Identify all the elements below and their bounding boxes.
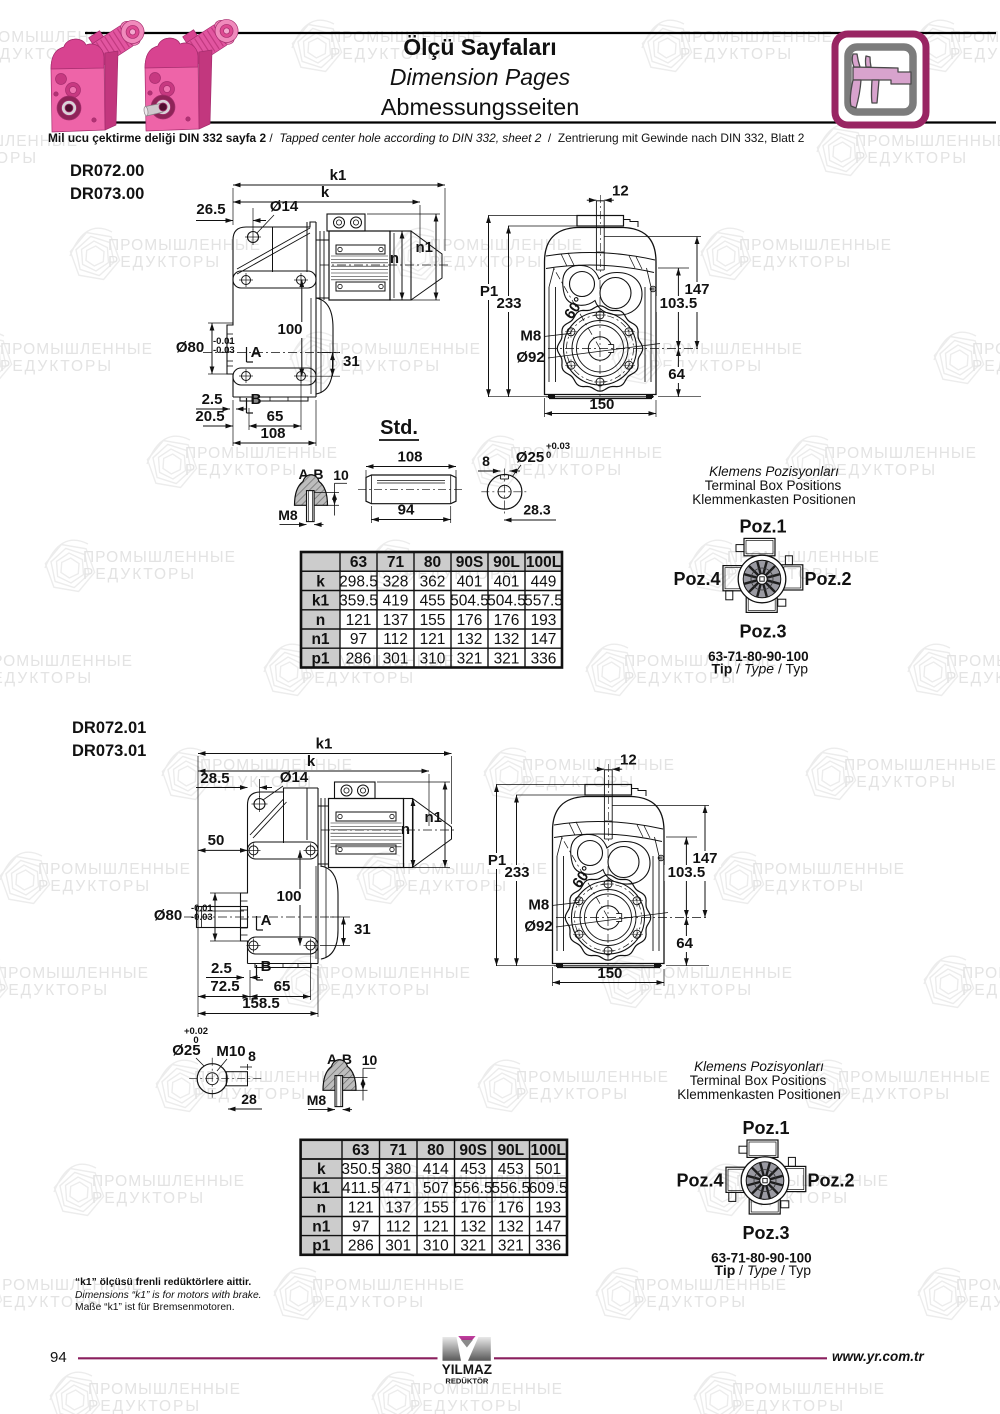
svg-text:380: 380 [385, 1161, 411, 1178]
svg-text:M8: M8 [520, 328, 541, 345]
svg-text:Klemmenkasten Positionen: Klemmenkasten Positionen [692, 492, 856, 507]
svg-text:176: 176 [460, 1199, 486, 1216]
svg-text:158.5: 158.5 [242, 995, 280, 1012]
svg-text:414: 414 [423, 1161, 449, 1178]
svg-text:455: 455 [420, 593, 446, 610]
svg-text:n: n [401, 821, 410, 838]
svg-text:A: A [251, 344, 262, 361]
svg-text:80: 80 [424, 554, 441, 571]
svg-text:471: 471 [385, 1180, 411, 1197]
svg-text:103.5: 103.5 [668, 864, 706, 881]
svg-text:121: 121 [348, 1199, 374, 1216]
svg-text:321: 321 [457, 650, 483, 667]
svg-text:504.5: 504.5 [487, 593, 526, 610]
svg-text:-0.03: -0.03 [213, 345, 235, 356]
svg-text:26.5: 26.5 [196, 201, 225, 218]
svg-text:0: 0 [546, 450, 551, 461]
svg-text:147: 147 [535, 1219, 561, 1236]
svg-text:Std.: Std. [380, 417, 418, 439]
svg-text:n: n [390, 250, 399, 267]
svg-text:64: 64 [668, 366, 685, 383]
svg-text:112: 112 [383, 631, 408, 648]
svg-text:65: 65 [267, 408, 284, 425]
svg-text:401: 401 [457, 573, 483, 590]
svg-text:71: 71 [390, 1142, 408, 1159]
svg-text:Tip / Type / Typ: Tip / Type / Typ [712, 661, 809, 677]
svg-text:411.5: 411.5 [342, 1180, 380, 1197]
svg-text:Poz.4: Poz.4 [673, 569, 720, 589]
svg-text:B: B [251, 391, 262, 408]
svg-text:609.5: 609.5 [529, 1180, 568, 1197]
svg-text:155: 155 [423, 1199, 449, 1216]
svg-text:310: 310 [423, 1238, 449, 1255]
svg-text:Ø92: Ø92 [516, 349, 544, 366]
svg-text:65: 65 [274, 978, 291, 995]
svg-text:Poz.2: Poz.2 [807, 1170, 854, 1190]
svg-text:501: 501 [535, 1161, 561, 1178]
svg-text:12: 12 [620, 752, 637, 769]
svg-text:336: 336 [531, 650, 557, 667]
svg-text:28: 28 [241, 1091, 257, 1107]
svg-text:132: 132 [498, 1219, 524, 1236]
svg-text:M10: M10 [216, 1043, 245, 1060]
svg-text:121: 121 [420, 631, 446, 648]
svg-text:Poz.3: Poz.3 [739, 622, 786, 642]
svg-text:321: 321 [460, 1238, 486, 1255]
svg-text:Terminal Box Positions: Terminal Box Positions [690, 1073, 827, 1088]
svg-text:80: 80 [427, 1142, 444, 1159]
svg-text:147: 147 [531, 631, 557, 648]
svg-text:193: 193 [531, 612, 557, 629]
svg-text:A: A [261, 912, 272, 929]
svg-text:298.5: 298.5 [339, 573, 378, 590]
svg-text:Ø14: Ø14 [280, 769, 309, 786]
svg-text:k: k [307, 753, 316, 770]
svg-text:507: 507 [423, 1180, 449, 1197]
svg-text:10: 10 [362, 1052, 378, 1068]
svg-text:103.5: 103.5 [660, 295, 698, 312]
svg-text:p1: p1 [311, 650, 329, 667]
svg-text:350.5: 350.5 [341, 1161, 380, 1178]
svg-text:YILMAZ: YILMAZ [442, 1362, 492, 1377]
svg-text:k1: k1 [312, 593, 330, 610]
svg-text:-0.03: -0.03 [191, 912, 213, 923]
svg-text:301: 301 [383, 650, 409, 667]
svg-text:286: 286 [348, 1238, 374, 1255]
svg-text:63: 63 [352, 1142, 370, 1159]
svg-text:k: k [316, 573, 325, 590]
svg-text:k: k [321, 184, 330, 201]
svg-text:100: 100 [277, 321, 302, 338]
svg-text:97: 97 [350, 631, 367, 648]
svg-text:Ø25: Ø25 [516, 449, 544, 466]
svg-text:90L: 90L [497, 1142, 524, 1159]
svg-text:556.5: 556.5 [454, 1180, 493, 1197]
svg-text:n: n [316, 612, 325, 629]
svg-text:M8: M8 [278, 507, 298, 523]
svg-text:286: 286 [346, 650, 372, 667]
svg-text:M8: M8 [307, 1092, 327, 1108]
svg-text:137: 137 [385, 1199, 411, 1216]
svg-text:k: k [317, 1161, 326, 1178]
svg-text:n1: n1 [312, 1219, 330, 1236]
svg-text:362: 362 [420, 573, 446, 590]
svg-text:132: 132 [457, 631, 483, 648]
svg-text:n1: n1 [424, 809, 442, 826]
svg-text:328: 328 [383, 573, 409, 590]
svg-text:28.5: 28.5 [200, 770, 229, 787]
svg-text:Klemmenkasten Positionen: Klemmenkasten Positionen [677, 1087, 841, 1102]
svg-text:28.3: 28.3 [523, 502, 550, 518]
svg-text:8: 8 [248, 1048, 256, 1064]
svg-text:556.5: 556.5 [491, 1180, 530, 1197]
svg-text:90S: 90S [456, 554, 484, 571]
svg-text:20.5: 20.5 [195, 408, 224, 425]
svg-text:132: 132 [460, 1219, 486, 1236]
svg-text:Ø92: Ø92 [524, 918, 552, 935]
svg-text:321: 321 [498, 1238, 524, 1255]
svg-text:k1: k1 [316, 736, 333, 753]
svg-text:100: 100 [276, 888, 301, 905]
svg-text:301: 301 [385, 1238, 411, 1255]
svg-text:Terminal Box Positions: Terminal Box Positions [705, 478, 842, 493]
svg-text:Poz.1: Poz.1 [742, 1118, 789, 1138]
svg-text:50: 50 [208, 832, 225, 849]
svg-text:449: 449 [531, 573, 557, 590]
svg-text:419: 419 [383, 593, 409, 610]
svg-text:31: 31 [343, 353, 360, 370]
svg-text:Klemens Pozisyonları: Klemens Pozisyonları [709, 464, 839, 479]
svg-text:453: 453 [460, 1161, 486, 1178]
svg-text:Klemens Pozisyonları: Klemens Pozisyonları [694, 1059, 824, 1074]
svg-text:176: 176 [498, 1199, 524, 1216]
svg-text:Tip / Type / Typ: Tip / Type / Typ [715, 1262, 812, 1278]
svg-text:176: 176 [457, 612, 483, 629]
svg-text:100L: 100L [531, 1142, 566, 1159]
svg-text:90L: 90L [493, 554, 520, 571]
svg-text:359.5: 359.5 [339, 593, 378, 610]
svg-text:Poz.4: Poz.4 [676, 1170, 723, 1190]
svg-text:150: 150 [597, 965, 622, 982]
svg-text:137: 137 [383, 612, 409, 629]
svg-text:112: 112 [386, 1219, 411, 1236]
svg-text:n1: n1 [415, 239, 433, 256]
svg-text:M8: M8 [528, 897, 549, 914]
svg-text:321: 321 [494, 650, 520, 667]
svg-text:97: 97 [352, 1219, 369, 1236]
svg-text:n: n [317, 1199, 326, 1216]
svg-text:176: 176 [494, 612, 520, 629]
svg-text:504.5: 504.5 [450, 593, 489, 610]
svg-text:REDÜKTÖR: REDÜKTÖR [445, 1377, 489, 1386]
svg-text:72.5: 72.5 [210, 978, 239, 995]
svg-text:Ø25: Ø25 [172, 1042, 200, 1059]
svg-text:31: 31 [354, 921, 371, 938]
svg-text:94: 94 [398, 502, 415, 519]
svg-text:Ø80: Ø80 [154, 907, 182, 924]
svg-text:B: B [261, 958, 272, 975]
svg-text:121: 121 [423, 1219, 449, 1236]
svg-text:132: 132 [494, 631, 520, 648]
svg-text:2.5: 2.5 [211, 960, 232, 977]
svg-text:63: 63 [350, 554, 368, 571]
svg-text:64: 64 [676, 935, 693, 952]
svg-text:60°: 60° [569, 863, 596, 891]
svg-text:Ø14: Ø14 [270, 198, 299, 215]
svg-text:310: 310 [420, 650, 446, 667]
svg-text:k1: k1 [313, 1180, 331, 1197]
svg-text:121: 121 [346, 612, 372, 629]
svg-text:60°: 60° [561, 294, 588, 322]
svg-text:71: 71 [387, 554, 405, 571]
svg-text:401: 401 [494, 573, 520, 590]
svg-text:108: 108 [260, 425, 285, 442]
svg-text:2.5: 2.5 [202, 391, 223, 408]
svg-text:453: 453 [498, 1161, 524, 1178]
svg-text:100L: 100L [526, 554, 561, 571]
svg-text:Poz.1: Poz.1 [739, 516, 786, 536]
svg-text:557.5: 557.5 [524, 593, 563, 610]
svg-text:233: 233 [504, 864, 529, 881]
svg-text:233: 233 [496, 295, 521, 312]
svg-text:336: 336 [535, 1238, 561, 1255]
svg-text:n1: n1 [311, 631, 329, 648]
svg-text:155: 155 [420, 612, 446, 629]
svg-text:12: 12 [612, 183, 629, 200]
svg-text:90S: 90S [459, 1142, 487, 1159]
svg-text:150: 150 [589, 396, 614, 413]
svg-text:k1: k1 [330, 167, 347, 184]
svg-text:Poz.2: Poz.2 [804, 569, 851, 589]
svg-text:8: 8 [482, 453, 490, 469]
svg-text:p1: p1 [312, 1238, 330, 1255]
svg-text:10: 10 [333, 467, 349, 483]
svg-text:108: 108 [397, 449, 422, 466]
svg-text:193: 193 [535, 1199, 561, 1216]
svg-text:Poz.3: Poz.3 [742, 1223, 789, 1243]
svg-text:Ø80: Ø80 [176, 339, 204, 356]
